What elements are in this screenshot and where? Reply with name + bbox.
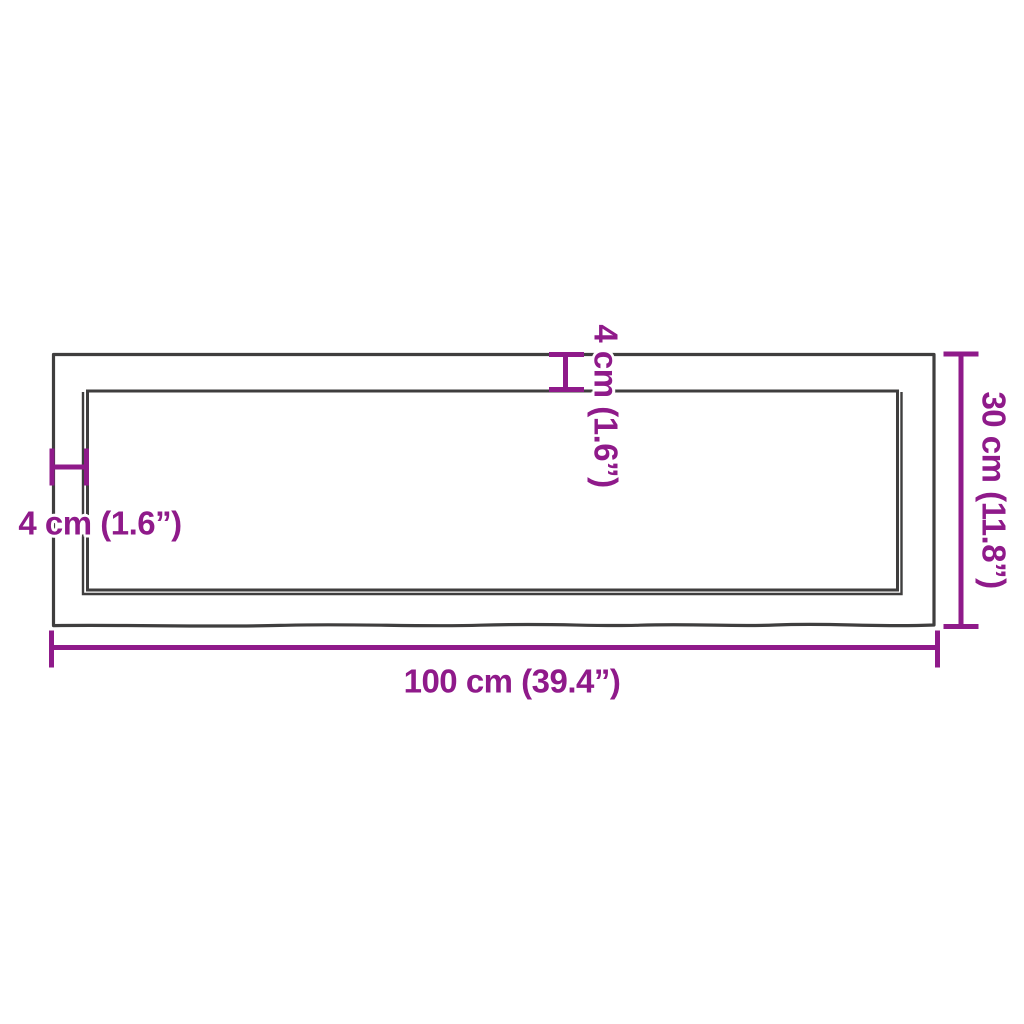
thickness-left-label: 4 cm (1.6”) xyxy=(18,507,181,540)
height-dimension-label: 30 cm (11.8”) xyxy=(978,391,1011,588)
width-dimension-label: 100 cm (39.4”) xyxy=(404,665,621,698)
thickness-top-label: 4 cm (1.6”) xyxy=(590,324,623,487)
board-outline xyxy=(54,355,935,627)
dimension-diagram: 100 cm (39.4”) 30 cm (11.8”) 4 cm (1.6”)… xyxy=(0,0,1024,1024)
height-dimension-line xyxy=(944,354,979,627)
